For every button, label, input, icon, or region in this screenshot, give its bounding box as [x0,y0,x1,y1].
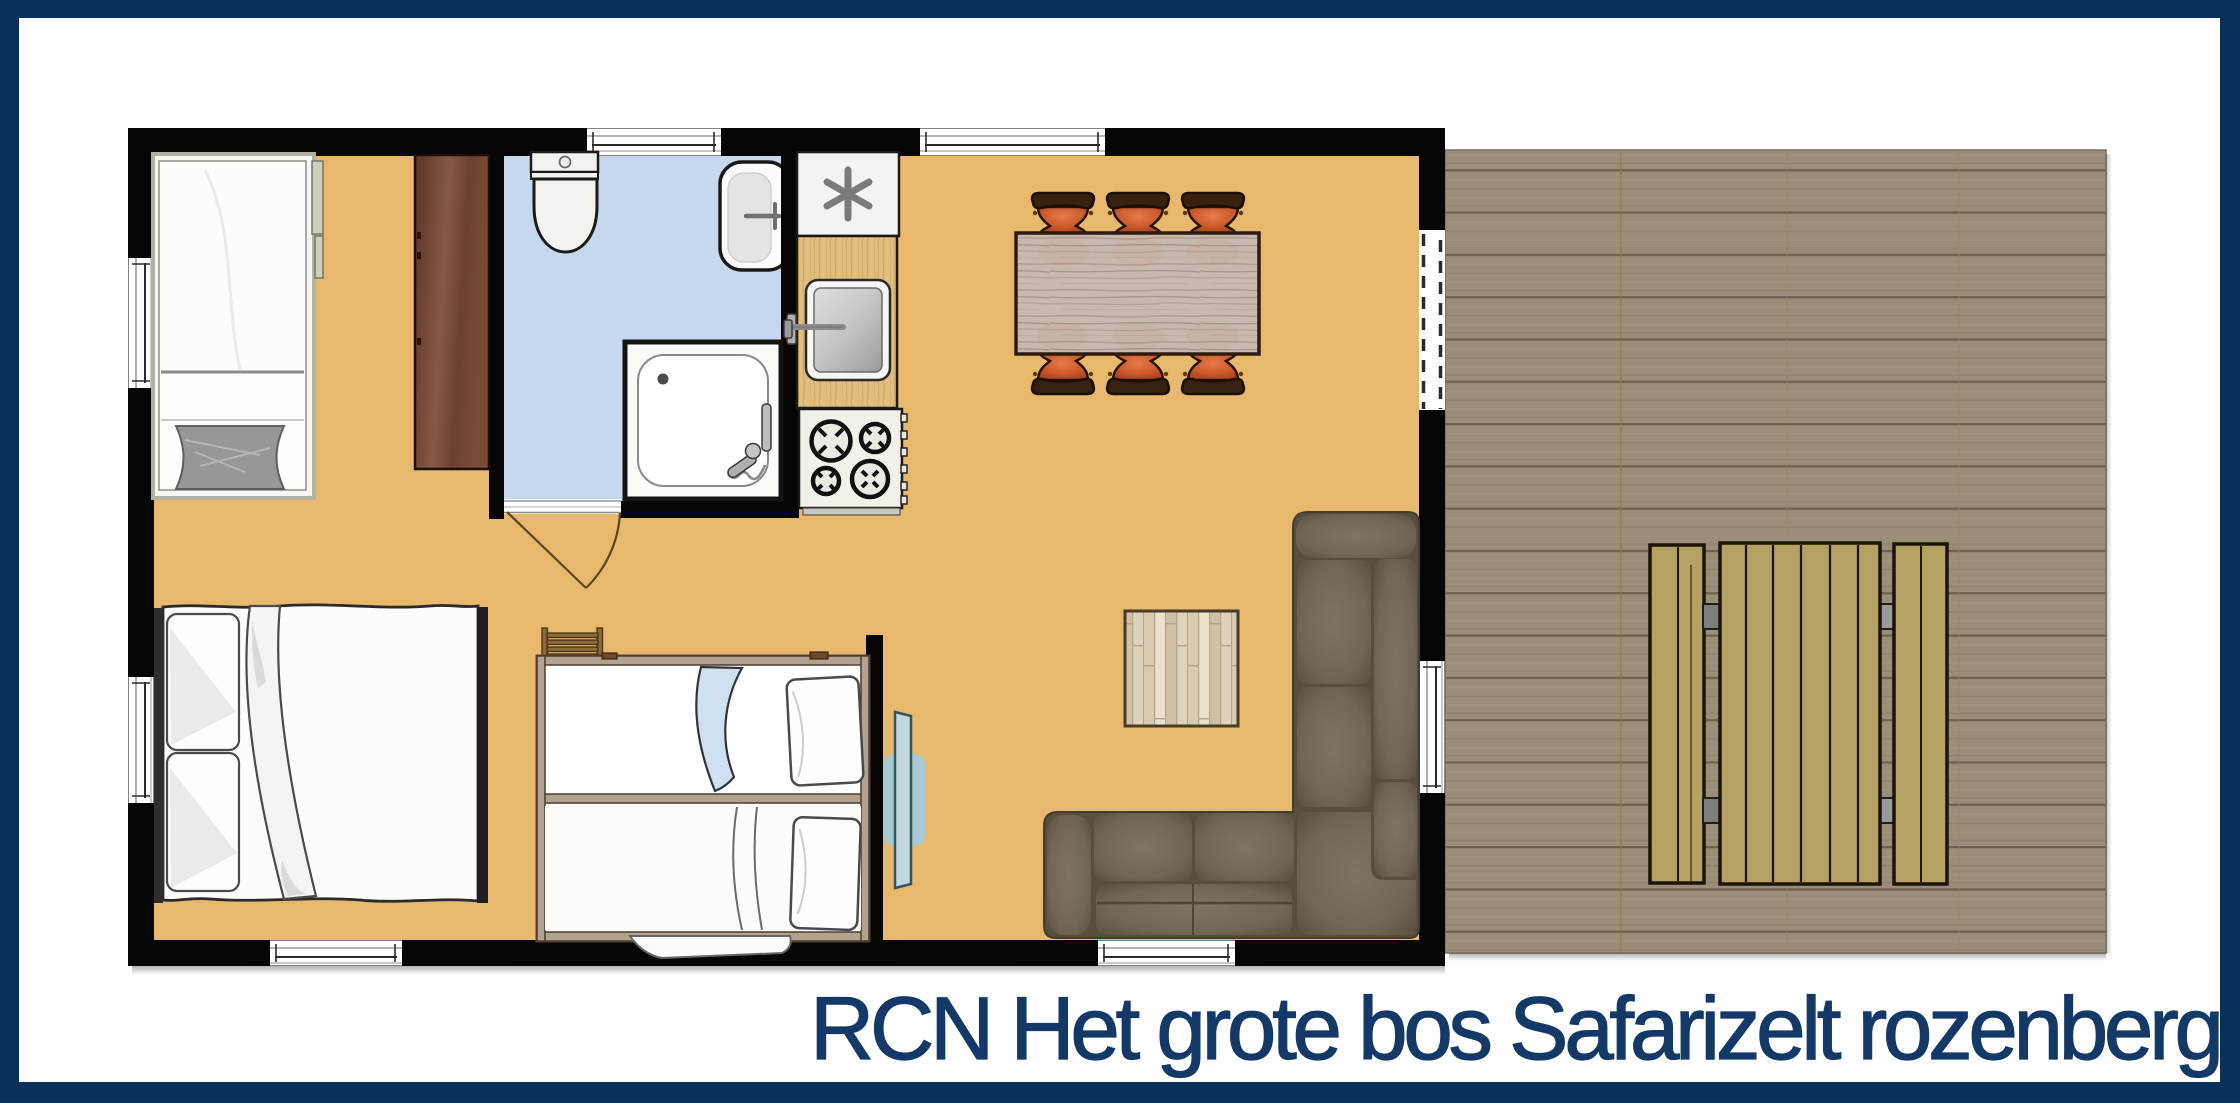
svg-text:RCN Het grote bos Safarizelt r: RCN Het grote bos Safarizelt rozenberg [810,978,2220,1078]
